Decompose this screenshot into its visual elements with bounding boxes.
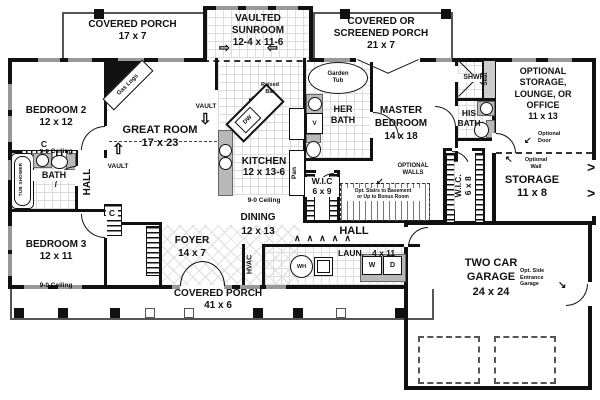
window: [216, 6, 238, 10]
floor-plan: Gas Logs Pan DW Raised Bar ↙ Garden Tub …: [0, 0, 600, 400]
vault-label: VAULT: [184, 103, 228, 111]
porch-railing: [10, 318, 434, 320]
porch-post: [94, 9, 104, 19]
porch-post: [336, 308, 346, 318]
window: [68, 58, 92, 62]
seat-label: Seat: [483, 59, 491, 99]
wall: [492, 58, 596, 62]
bath-label: BATH: [32, 170, 76, 181]
water-heater-label: WH: [297, 264, 306, 270]
window: [38, 58, 60, 62]
porch-post: [293, 308, 303, 318]
bedroom3-ceiling: 9-0 Ceiling: [12, 282, 100, 290]
foyer-label: FOYER 14 x 7: [148, 234, 236, 260]
refrigerator: [289, 108, 305, 140]
great-room-label: GREAT ROOM 17 x 23: [106, 124, 214, 150]
door-arc: [566, 284, 588, 306]
window: [246, 6, 268, 10]
door-arc: [408, 227, 428, 247]
garage-door-outline: [494, 336, 556, 384]
bedroom2-ceiling: 9-0 Ceiling: [12, 148, 100, 156]
wall: [8, 209, 107, 212]
utility-sink-basin: [317, 260, 330, 273]
wall-break-chevron-icon: >: [587, 186, 595, 200]
wall: [242, 244, 245, 289]
closet-shelf-hatch: [475, 153, 484, 223]
toilet: [306, 141, 321, 158]
optional-storage-label: OPTIONAL STORAGE, LOUNGE, OR OFFICE 11 x…: [498, 66, 588, 122]
her-bath-label: HER BATH: [318, 104, 368, 127]
window: [436, 58, 452, 62]
door-opening: [455, 66, 458, 82]
garage-door-outline: [418, 336, 480, 384]
screened-porch-label: COVERED OR SCREENED PORCH 21 x 7: [315, 16, 447, 52]
covered-porch-bottom-label: COVERED PORCH 41 x 6: [148, 288, 288, 312]
hvac-label: HVAC: [247, 243, 258, 287]
sunroom-label: VAULTED SUNROOM 12-4 x 11-6: [205, 13, 311, 49]
window: [548, 58, 572, 62]
laundry-dims: 4 x 11: [372, 248, 404, 258]
raised-bar-label: Raised Bar: [252, 82, 288, 95]
hall-center-label: HALL: [322, 225, 386, 238]
wall: [455, 138, 495, 141]
kitchen-label: KITCHEN 12 x 13-6: [224, 156, 304, 178]
window: [512, 58, 536, 62]
wall-break-chevron-icon: >: [587, 160, 595, 174]
washer: W: [362, 256, 382, 275]
bedroom2-label: BEDROOM 2 12 x 12: [12, 105, 100, 129]
washer-label: W: [369, 262, 376, 269]
wall: [264, 244, 420, 247]
storage-label: STORAGE 11 x 8: [494, 174, 570, 200]
garden-tub: Garden Tub: [308, 62, 368, 94]
vault-label: VAULT: [94, 163, 142, 171]
opt-side-entrance-arrow-icon: ↘: [558, 281, 566, 291]
closet-label: C: [106, 208, 118, 218]
optional-wall-arrow-icon: ↖: [505, 155, 513, 164]
optional-walls-arrow-icon: ↙: [376, 177, 384, 186]
window: [276, 6, 298, 10]
covered-porch-top-label: COVERED PORCH 17 x 7: [64, 19, 201, 43]
porch-edge: [432, 289, 434, 320]
bedroom3-label: BEDROOM 3 12 x 11: [12, 239, 100, 263]
optional-door-label: Optional Door: [538, 131, 580, 144]
porch-post: [58, 308, 68, 318]
vanity-label: V: [312, 120, 316, 127]
wic-left-label: W.I.C 6 x 9: [305, 177, 339, 197]
laundry-label: LAUN.: [338, 248, 370, 258]
kitchen-ceiling: 9-0 Ceiling: [224, 197, 304, 205]
bedroom3-label-block: BEDROOM 3 12 x 11 9-0 Ceiling: [12, 220, 100, 309]
water-heater: WH: [290, 255, 313, 278]
optional-door-arrow-icon: ↙: [524, 136, 532, 145]
wall: [262, 244, 265, 289]
porch-post: [14, 308, 24, 318]
optional-walls-label: OPTIONAL WALLS: [384, 163, 442, 177]
dryer-label: D: [390, 262, 395, 269]
opt-stairs-label: Opt. Stairs to Basement or Up to Bonus R…: [343, 188, 423, 201]
window: [158, 58, 184, 62]
porch-post: [110, 308, 120, 318]
wall: [303, 158, 373, 161]
optional-wall-label: Optional Wall: [516, 157, 556, 170]
wic-right-label: W.I.C. 6 x 8: [454, 162, 474, 210]
wall: [404, 386, 592, 390]
door-arc: [496, 133, 516, 153]
hall-left-label: HALL: [82, 160, 94, 204]
master-bedroom-label: MASTER BEDROOM 14 x 18: [364, 104, 438, 143]
dishwasher-label: DW: [242, 114, 253, 125]
raised-bar-arrow-icon: ↙: [248, 95, 255, 103]
wall: [215, 58, 218, 90]
garden-tub-label: Garden Tub: [327, 71, 348, 85]
closet-label: C: [38, 139, 50, 149]
door-opening: [588, 282, 592, 306]
dryer: D: [383, 256, 402, 275]
